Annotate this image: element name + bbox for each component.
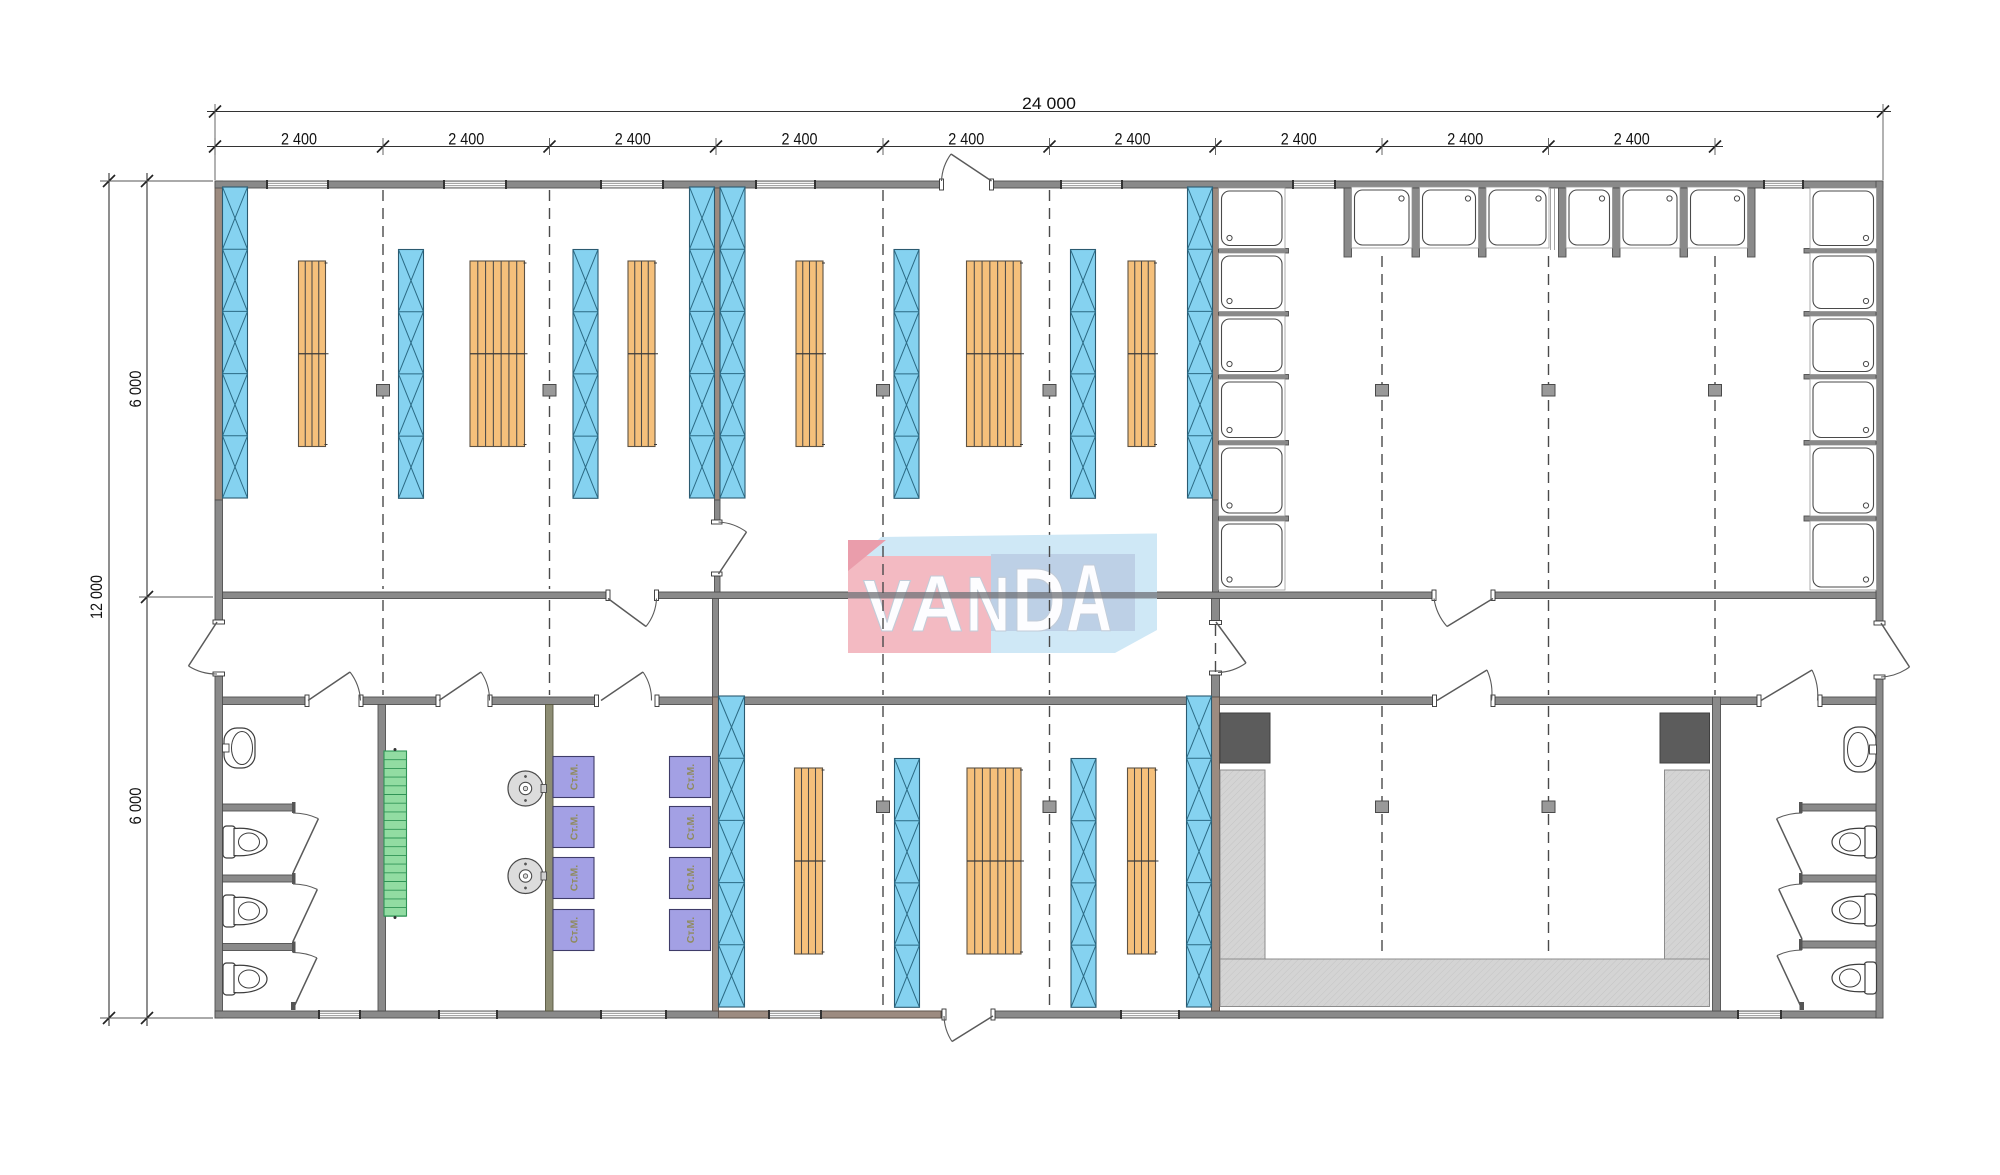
svg-text:A: A (911, 559, 964, 648)
svg-text:D: D (1012, 551, 1066, 651)
svg-text:2 400: 2 400 (782, 130, 818, 149)
svg-text:2 400: 2 400 (948, 130, 984, 149)
svg-text:Ст.М.: Ст.М. (685, 865, 697, 891)
svg-text:2 400: 2 400 (615, 130, 651, 149)
svg-text:2 400: 2 400 (1281, 130, 1317, 149)
svg-text:Ст.М.: Ст.М. (569, 917, 581, 943)
svg-text:24 000: 24 000 (1022, 94, 1076, 113)
svg-text:12 000: 12 000 (87, 575, 106, 619)
svg-text:2 400: 2 400 (1614, 130, 1650, 149)
svg-text:Ст.М.: Ст.М. (685, 917, 697, 943)
svg-text:2 400: 2 400 (448, 130, 484, 149)
svg-text:6 000: 6 000 (126, 788, 145, 825)
svg-text:Ст.М.: Ст.М. (569, 814, 581, 840)
svg-text:2 400: 2 400 (281, 130, 317, 149)
svg-text:V: V (863, 566, 911, 647)
svg-text:Ст.М.: Ст.М. (569, 865, 581, 891)
svg-text:2 400: 2 400 (1447, 130, 1483, 149)
svg-text:Ст.М.: Ст.М. (685, 814, 697, 840)
svg-text:2 400: 2 400 (1115, 130, 1151, 149)
svg-text:Ст.М.: Ст.М. (569, 764, 581, 790)
svg-text:N: N (966, 560, 1010, 648)
svg-text:Ст.М.: Ст.М. (685, 764, 697, 790)
svg-text:6 000: 6 000 (126, 371, 145, 408)
